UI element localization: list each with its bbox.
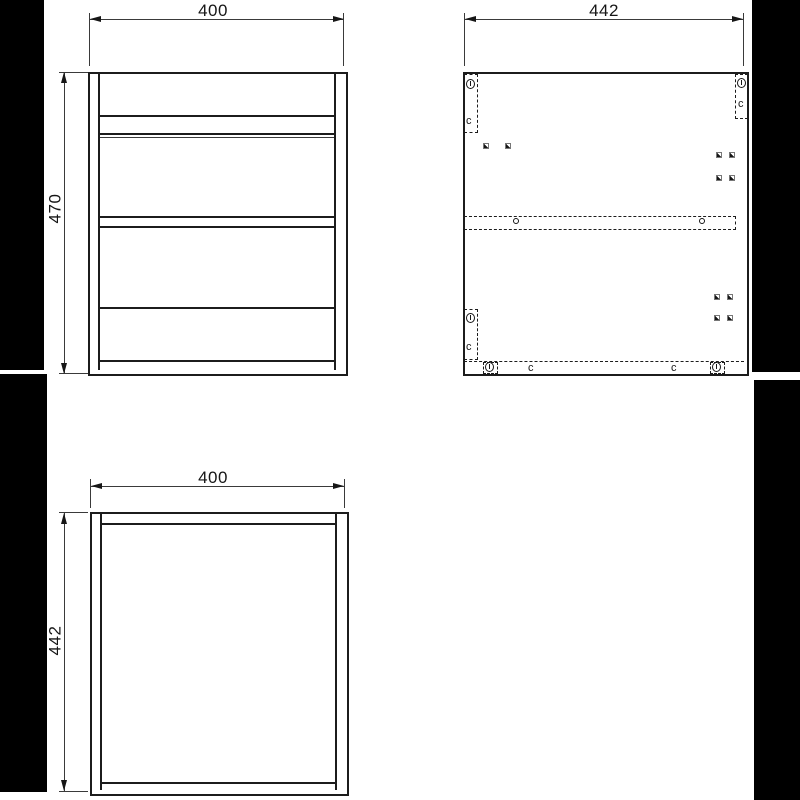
front-height-dim-label: 470 (47, 179, 64, 239)
dim-arrow-down-icon (61, 363, 67, 374)
top-back-panel-line (102, 523, 335, 525)
cam-letter: c (466, 116, 472, 127)
front-left-panel-line (98, 74, 100, 370)
cam-fitting-icon (737, 78, 746, 88)
dim-arrow-right-icon (732, 16, 743, 22)
scan-margin-left-bottom (0, 374, 47, 792)
front-shelf-line (100, 216, 334, 218)
drawing-canvas: 400 470 442 c c c (0, 0, 800, 800)
top-front-panel-line (102, 782, 335, 784)
screw-mark-icon (714, 315, 720, 321)
top-left-panel-line (100, 514, 102, 790)
dim-arrow-down-icon (61, 780, 67, 791)
dim-arrow-right-icon (333, 16, 344, 22)
side-width-dim-label: 442 (574, 2, 634, 19)
dim-arrow-left-icon (91, 483, 102, 489)
top-width-dim-label: 400 (183, 469, 243, 486)
cam-fitting-icon (485, 362, 494, 372)
front-rail-line (100, 137, 334, 138)
scan-margin-right-top (752, 0, 800, 372)
screw-mark-icon (513, 218, 519, 224)
top-right-panel-line (335, 514, 337, 790)
cam-letter: c (738, 99, 744, 110)
screw-mark-icon (729, 175, 735, 181)
front-right-panel-line (334, 74, 336, 370)
cam-letter: c (528, 363, 534, 374)
screw-mark-icon (714, 294, 720, 300)
cam-fitting-icon (466, 79, 475, 89)
shelf-hidden-outline (464, 216, 736, 230)
top-depth-ext-line (59, 791, 88, 792)
cam-letter: c (671, 363, 677, 374)
screw-mark-icon (505, 143, 511, 149)
top-outline (90, 512, 349, 796)
dim-arrow-left-icon (465, 16, 476, 22)
screw-mark-icon (727, 294, 733, 300)
screw-mark-icon (716, 175, 722, 181)
front-shelf-line (100, 226, 334, 228)
screw-mark-icon (729, 152, 735, 158)
front-rail-line (100, 133, 334, 135)
top-depth-dim-label: 442 (47, 611, 64, 671)
front-outline (88, 72, 348, 376)
screw-mark-icon (699, 218, 705, 224)
front-shelf-line (100, 307, 334, 309)
cam-fitting-icon (712, 362, 721, 372)
front-width-dim-label: 400 (183, 2, 243, 19)
dim-arrow-left-icon (90, 16, 101, 22)
side-width-ext-line (743, 13, 744, 66)
front-bottom-rail-line (100, 360, 334, 362)
cam-fitting-icon (466, 313, 475, 323)
scan-margin-left-top (0, 0, 44, 370)
dim-arrow-right-icon (333, 483, 344, 489)
bottom-panel-hidden-line (464, 361, 744, 362)
top-width-ext-line (344, 479, 345, 508)
screw-mark-icon (483, 143, 489, 149)
dim-arrow-up-icon (61, 513, 67, 524)
dim-arrow-up-icon (61, 72, 67, 83)
screw-mark-icon (716, 152, 722, 158)
scan-margin-right-bottom (754, 380, 800, 800)
screw-mark-icon (727, 315, 733, 321)
front-rail-line (100, 115, 334, 117)
cam-letter: c (466, 342, 472, 353)
